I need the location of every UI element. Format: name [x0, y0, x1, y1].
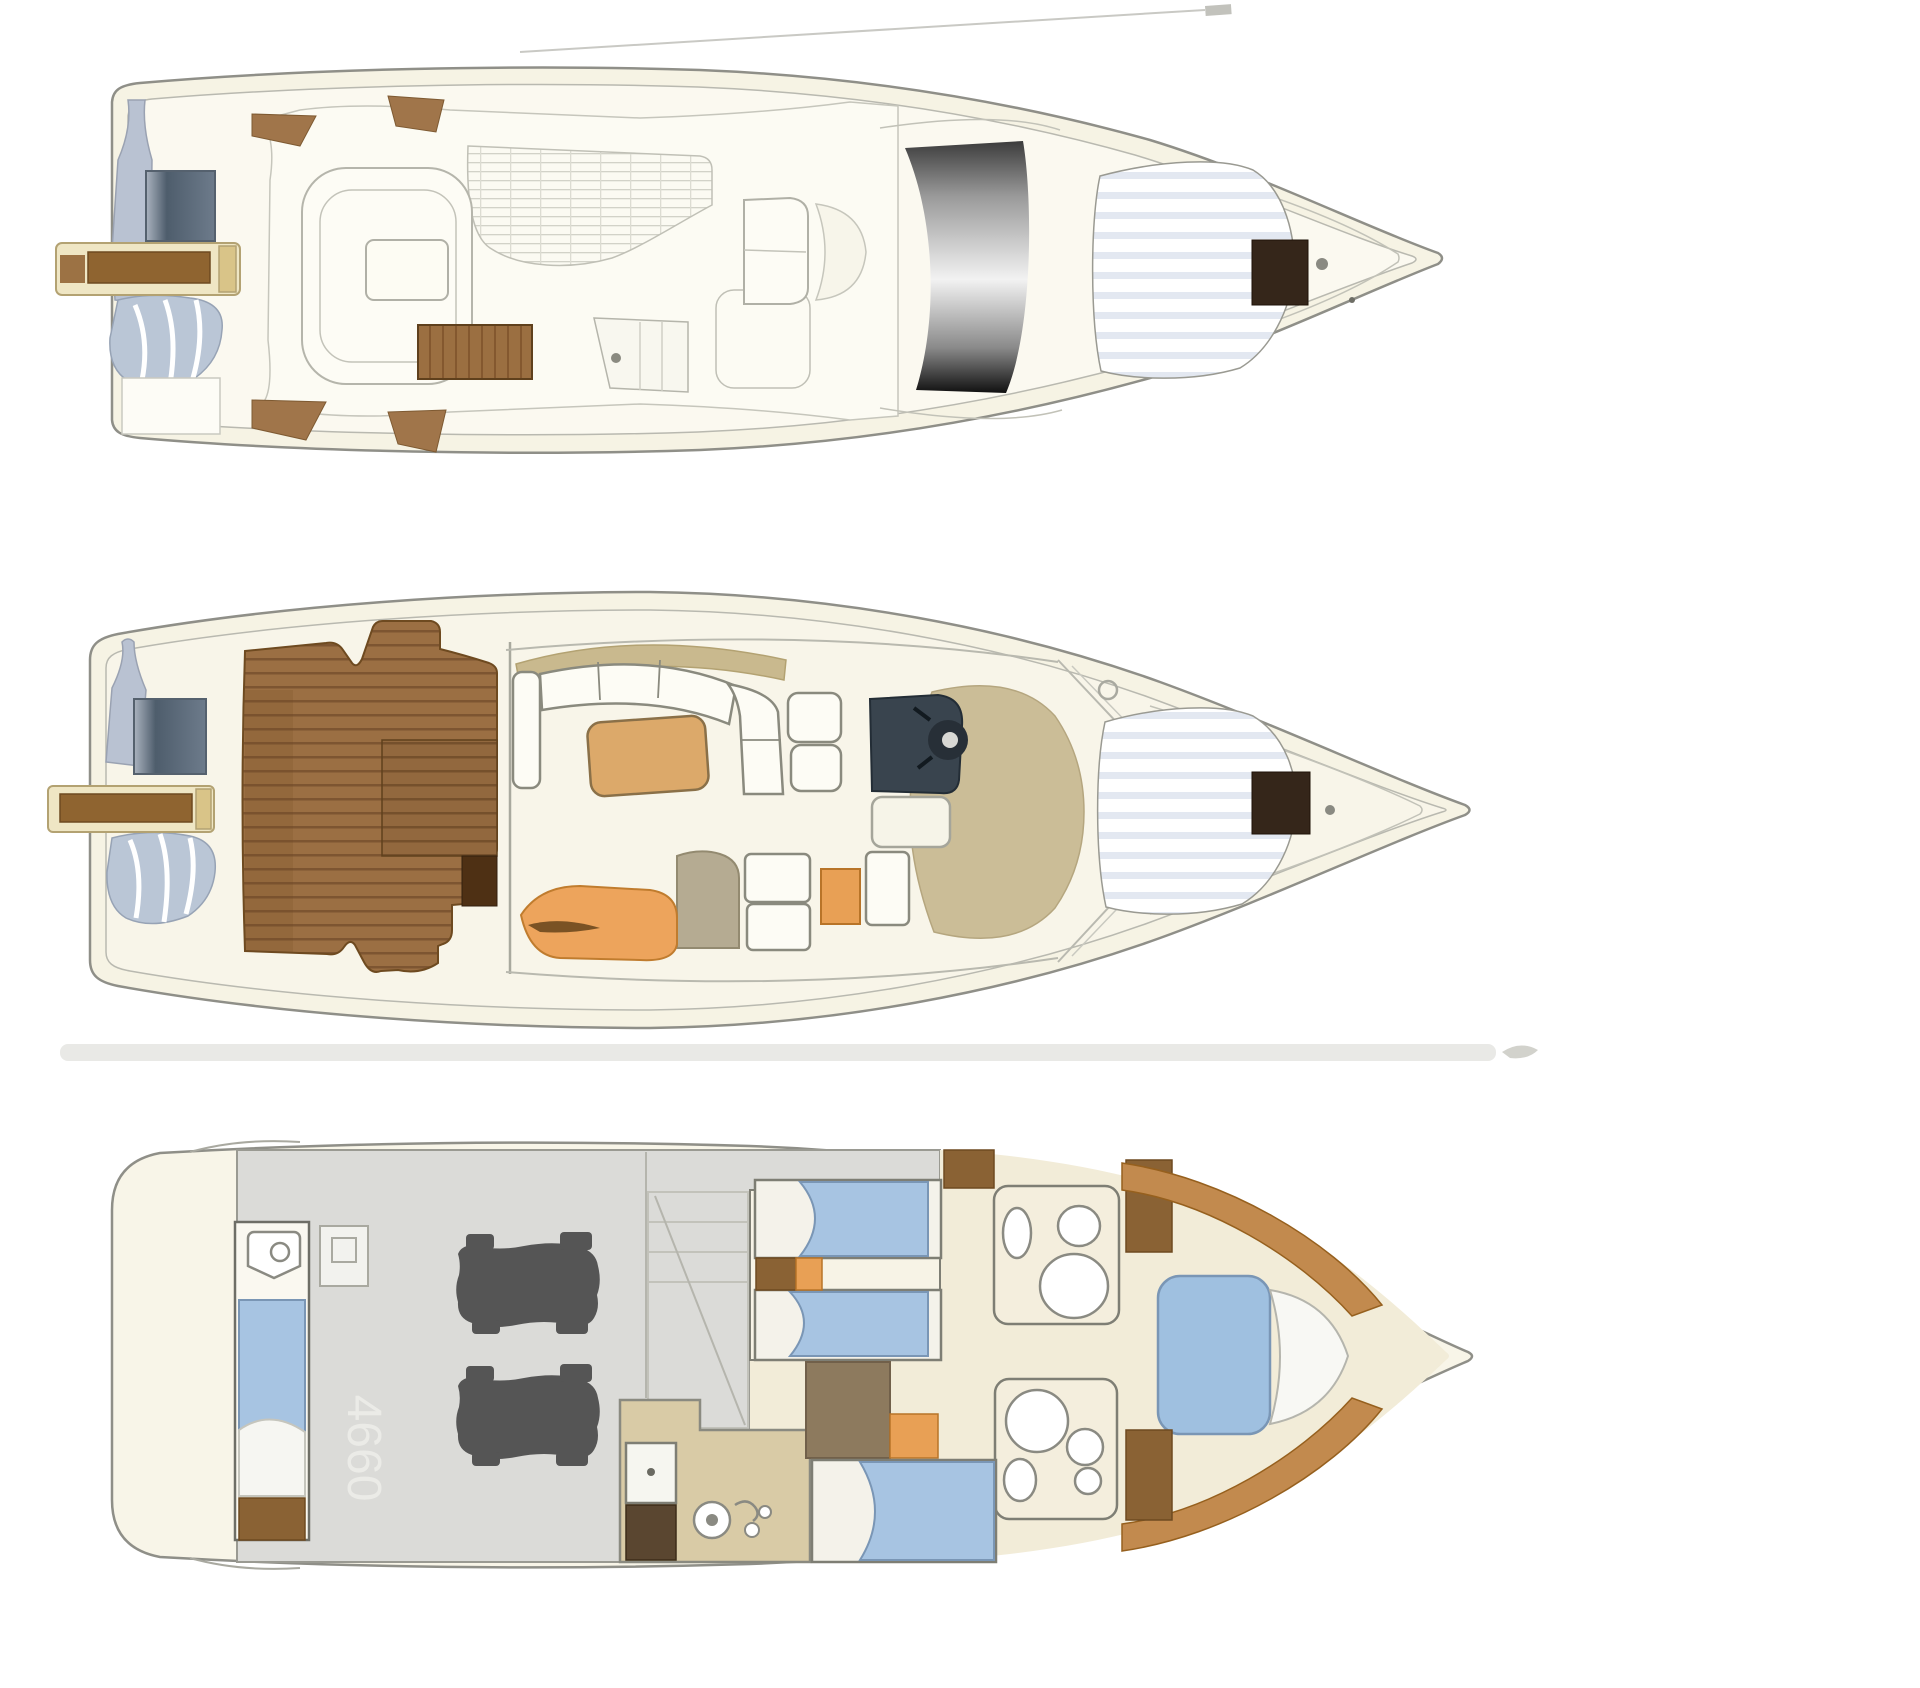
- svg-text:4660: 4660: [337, 1395, 390, 1502]
